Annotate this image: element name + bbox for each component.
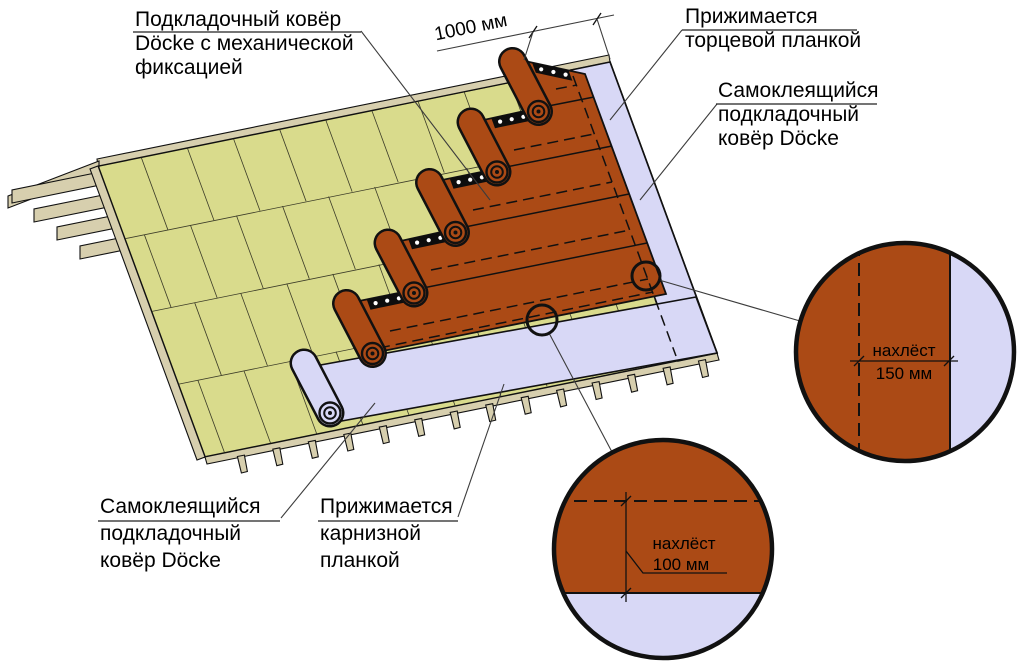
overlap-150-label-word: нахлёст bbox=[872, 341, 935, 360]
nail-dot bbox=[457, 180, 461, 184]
label-pressed-eaves-1: Прижимается bbox=[320, 495, 453, 518]
label-underlay-mechanical-3: фиксацией bbox=[135, 56, 243, 79]
label-pressed-eaves-3: планкой bbox=[320, 549, 400, 572]
rafter-tail-tooth bbox=[308, 440, 318, 458]
detail-view-100-overlap: нахлёст 100 мм bbox=[554, 440, 772, 659]
nail-dot bbox=[498, 120, 502, 124]
roll-end-spiral bbox=[537, 110, 541, 114]
dimension-label: 1000 мм bbox=[433, 10, 509, 45]
label-pressed-end-2: торцевой планкой bbox=[685, 29, 861, 52]
overlap-100-label-value: 100 мм bbox=[653, 555, 709, 574]
roofing-diagram: 1000 мм нахлёст 150 мм нахлёст 100 мм bbox=[0, 0, 1024, 667]
roll-end-spiral bbox=[328, 411, 332, 415]
nail-dot bbox=[510, 117, 514, 121]
rafter-beam bbox=[34, 194, 108, 222]
extension-line bbox=[524, 32, 533, 60]
rafter-tail-tooth bbox=[415, 418, 425, 436]
roll-end-spiral bbox=[412, 291, 416, 295]
label-self-adhesive-right-3: ковёр Döcke bbox=[718, 127, 839, 150]
diagram-canvas: 1000 мм нахлёст 150 мм нахлёст 100 мм bbox=[0, 0, 1024, 667]
nail-dot bbox=[415, 241, 419, 245]
nail-dot bbox=[564, 73, 568, 77]
roll-end-spiral bbox=[371, 352, 375, 356]
nail-dot bbox=[374, 301, 378, 305]
overlap-100-label-word: нахлёст bbox=[652, 534, 715, 553]
nail-dot bbox=[539, 67, 543, 71]
rafter-beam bbox=[57, 215, 116, 240]
label-pressed-eaves-2: карнизной bbox=[320, 522, 421, 545]
label-self-adhesive-left-1: Самоклеящийся bbox=[100, 495, 261, 518]
roll-end-spiral bbox=[495, 170, 499, 174]
rafter-tail-tooth bbox=[379, 426, 389, 444]
label-pressed-end-1: Прижимается bbox=[685, 5, 818, 28]
leader-self-adhesive-right bbox=[640, 104, 717, 200]
rafter-tail-tooth bbox=[237, 455, 247, 473]
nail-dot bbox=[551, 70, 555, 74]
label-underlay-mechanical-1: Подкладочный ковёр bbox=[135, 8, 341, 31]
nail-dot bbox=[468, 178, 472, 182]
rafter-tail-tooth bbox=[273, 448, 283, 466]
label-underlay-mechanical-2: Döcke с механической bbox=[135, 32, 354, 55]
extension-line bbox=[597, 19, 610, 59]
detail-view-150-overlap: нахлёст 150 мм bbox=[780, 230, 1014, 474]
label-self-adhesive-left-2: подкладочный bbox=[100, 522, 241, 545]
rafter-tail-tooth bbox=[450, 411, 460, 429]
overlap-150-label-value: 150 мм bbox=[876, 364, 932, 383]
nail-dot bbox=[427, 238, 431, 242]
label-self-adhesive-right-1: Самоклеящийся bbox=[718, 79, 879, 102]
roll-end-spiral bbox=[454, 231, 458, 235]
label-self-adhesive-left-3: ковёр Döcke bbox=[100, 549, 221, 572]
leader-pressed-end bbox=[610, 30, 682, 120]
nail-dot bbox=[385, 299, 389, 303]
label-self-adhesive-right-2: подкладочный bbox=[718, 103, 859, 126]
